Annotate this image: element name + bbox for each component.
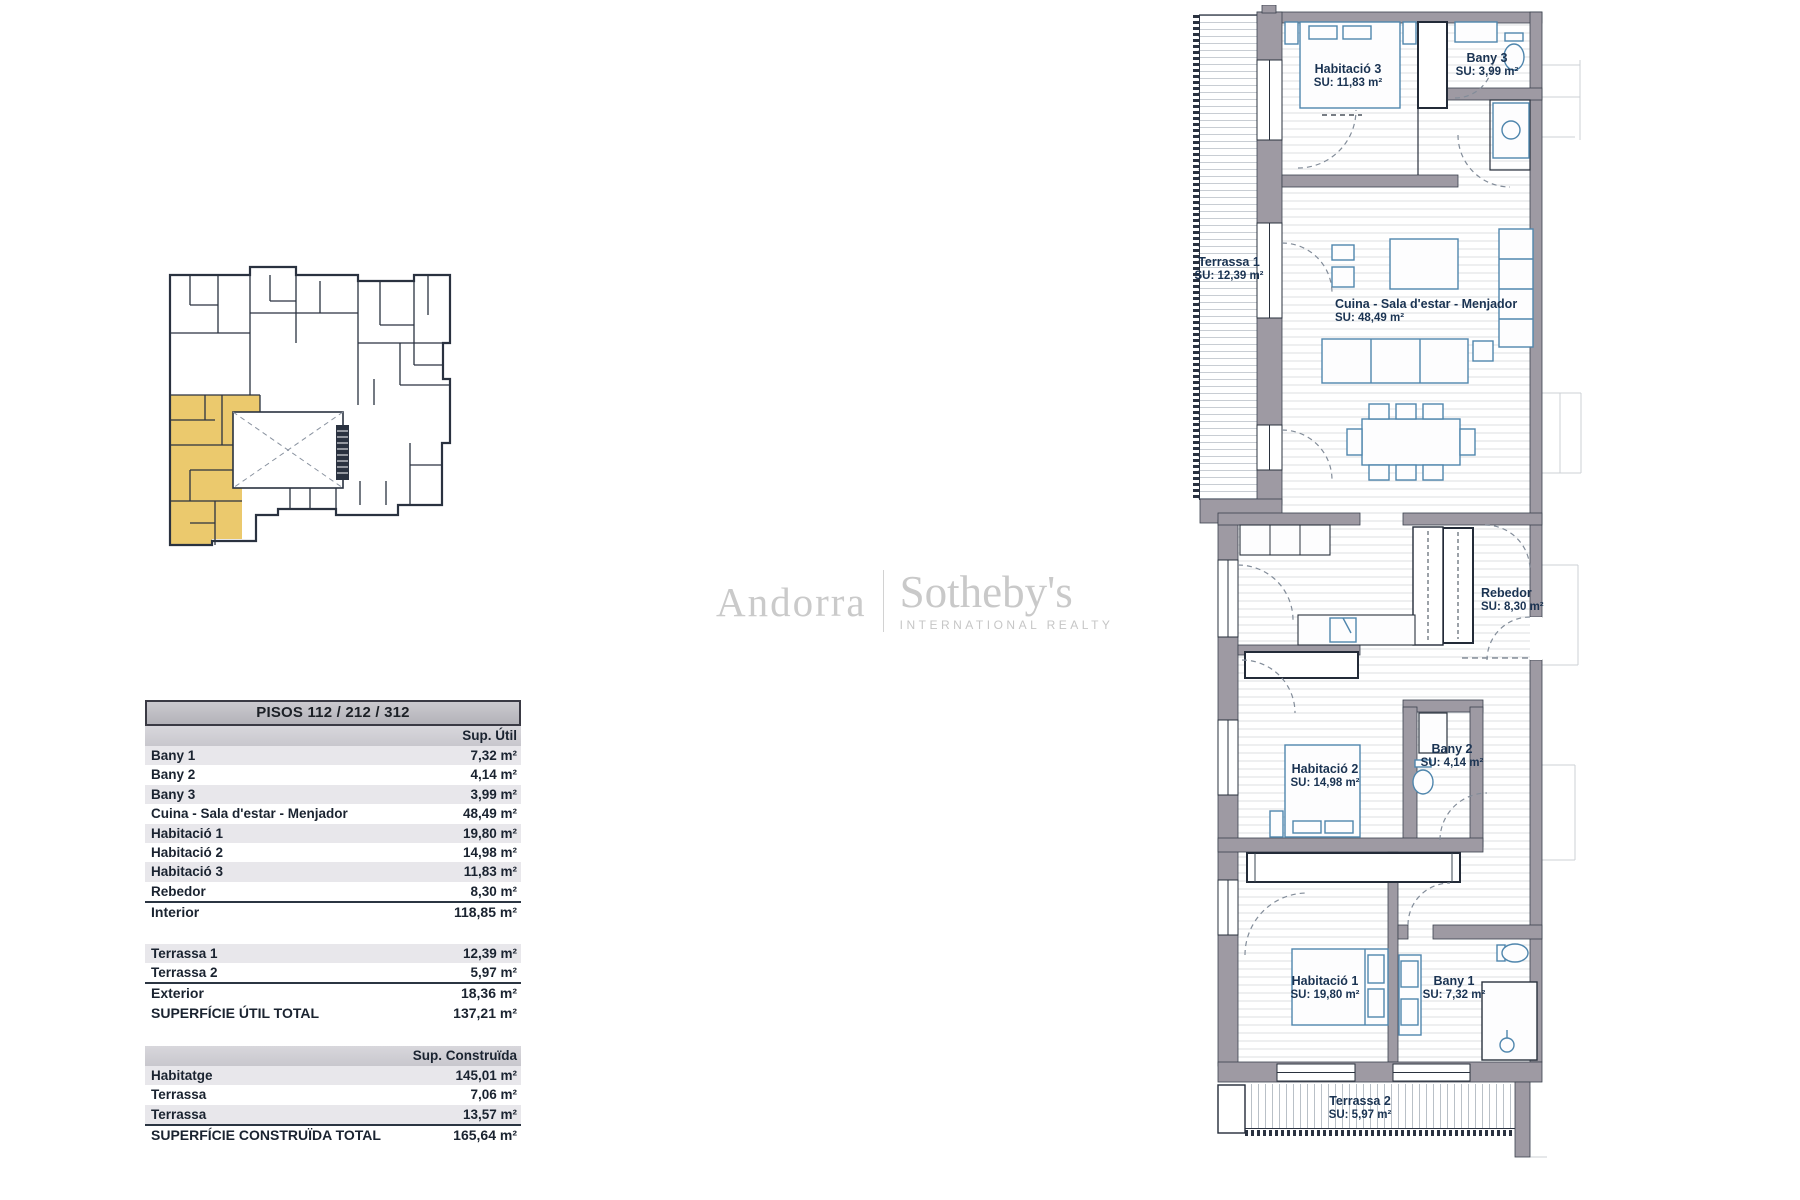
surface-util-table: PISOS 112 / 212 / 312 Sup. Útil Bany 17,… <box>145 700 521 1023</box>
row-value: 118,85 m² <box>454 903 521 922</box>
row-value: 48,49 m² <box>463 804 521 823</box>
brand-watermark: Andorra Sotheby's INTERNATIONAL REALTY <box>716 570 1113 632</box>
table-row: Cuina - Sala d'estar - Menjador48,49 m² <box>145 804 521 823</box>
row-value: 8,30 m² <box>470 882 521 901</box>
row-value: 19,80 m² <box>463 824 521 843</box>
table-row: Terrassa7,06 m² <box>145 1085 521 1104</box>
row-label: Habitació 3 <box>145 862 223 881</box>
row-label: Habitació 2 <box>145 843 223 862</box>
row-value: 13,57 m² <box>463 1105 521 1124</box>
brand-tagline: INTERNATIONAL REALTY <box>900 618 1114 632</box>
row-label: Terrassa <box>145 1085 206 1104</box>
table-row: Terrassa 25,97 m² <box>145 963 521 982</box>
apartment-floorplan: Habitació 3 SU: 11,83 m² Bany 3 SU: 3,99… <box>1185 5 1585 1165</box>
row-value: 12,39 m² <box>463 944 521 963</box>
row-value: 3,99 m² <box>470 785 521 804</box>
overview-floorplan <box>160 255 460 547</box>
document-page: { "logo": { "left": "Andorra", "right": … <box>0 0 1800 1200</box>
util-grand-total-row: SUPERFÍCIE ÚTIL TOTAL 137,21 m² <box>145 1004 521 1023</box>
row-value: 18,36 m² <box>461 984 521 1003</box>
exterior-total-row: Exterior 18,36 m² <box>145 982 521 1003</box>
overview-floorplan-svg <box>160 255 460 547</box>
row-label: SUPERFÍCIE ÚTIL TOTAL <box>145 1004 319 1023</box>
table-row: Terrassa 112,39 m² <box>145 944 521 963</box>
row-label: SUPERFÍCIE CONSTRUÏDA TOTAL <box>145 1126 381 1145</box>
row-value: 7,32 m² <box>470 746 521 765</box>
table-row: Habitatge145,01 m² <box>145 1066 521 1085</box>
table-row: Habitació 214,98 m² <box>145 843 521 862</box>
row-value: 165,64 m² <box>453 1126 521 1145</box>
row-value: 14,98 m² <box>463 843 521 862</box>
table-row: Bany 33,99 m² <box>145 785 521 804</box>
table-row: Habitació 119,80 m² <box>145 824 521 843</box>
row-label: Habitació 1 <box>145 824 223 843</box>
table-row: Bany 24,14 m² <box>145 765 521 784</box>
table-title: PISOS 112 / 212 / 312 <box>145 700 521 726</box>
apartment-floorplan-svg <box>1185 5 1585 1165</box>
row-label: Interior <box>145 903 199 922</box>
column-header-sup-util: Sup. Útil <box>145 726 521 746</box>
table-row: Habitació 311,83 m² <box>145 862 521 881</box>
courtyard <box>233 412 349 488</box>
row-label: Terrassa 1 <box>145 944 218 963</box>
table-row: Rebedor8,30 m² <box>145 882 521 901</box>
brand-divider <box>883 570 884 632</box>
construida-total-row: SUPERFÍCIE CONSTRUÏDA TOTAL 165,64 m² <box>145 1124 521 1145</box>
row-label: Exterior <box>145 984 204 1003</box>
column-header-sup-construida: Sup. Construïda <box>145 1046 521 1066</box>
row-value: 4,14 m² <box>470 765 521 784</box>
interior-total-row: Interior 118,85 m² <box>145 901 521 922</box>
row-label: Rebedor <box>145 882 206 901</box>
row-label: Bany 3 <box>145 785 195 804</box>
elevator-shaft <box>336 425 349 480</box>
brand-name-right: Sotheby's <box>900 570 1114 615</box>
row-value: 137,21 m² <box>453 1004 521 1023</box>
table-row: Bany 17,32 m² <box>145 746 521 765</box>
row-label: Habitatge <box>145 1066 213 1085</box>
row-label: Bany 2 <box>145 765 195 784</box>
row-label: Cuina - Sala d'estar - Menjador <box>145 804 348 823</box>
exterior-rows: Terrassa 112,39 m²Terrassa 25,97 m² <box>145 944 521 983</box>
row-value: 11,83 m² <box>464 862 521 881</box>
table-row: Terrassa13,57 m² <box>145 1105 521 1124</box>
row-label: Bany 1 <box>145 746 195 765</box>
brand-name-left: Andorra <box>716 582 867 632</box>
construida-rows: Habitatge145,01 m²Terrassa7,06 m²Terrass… <box>145 1066 521 1124</box>
row-label: Terrassa 2 <box>145 963 218 982</box>
row-value: 5,97 m² <box>470 963 521 982</box>
row-value: 145,01 m² <box>455 1066 521 1085</box>
surface-construida-table: Sup. Construïda Habitatge145,01 m²Terras… <box>145 1046 521 1146</box>
util-rows: Bany 17,32 m²Bany 24,14 m²Bany 33,99 m²C… <box>145 746 521 901</box>
row-value: 7,06 m² <box>470 1085 521 1104</box>
row-label: Terrassa <box>145 1105 206 1124</box>
